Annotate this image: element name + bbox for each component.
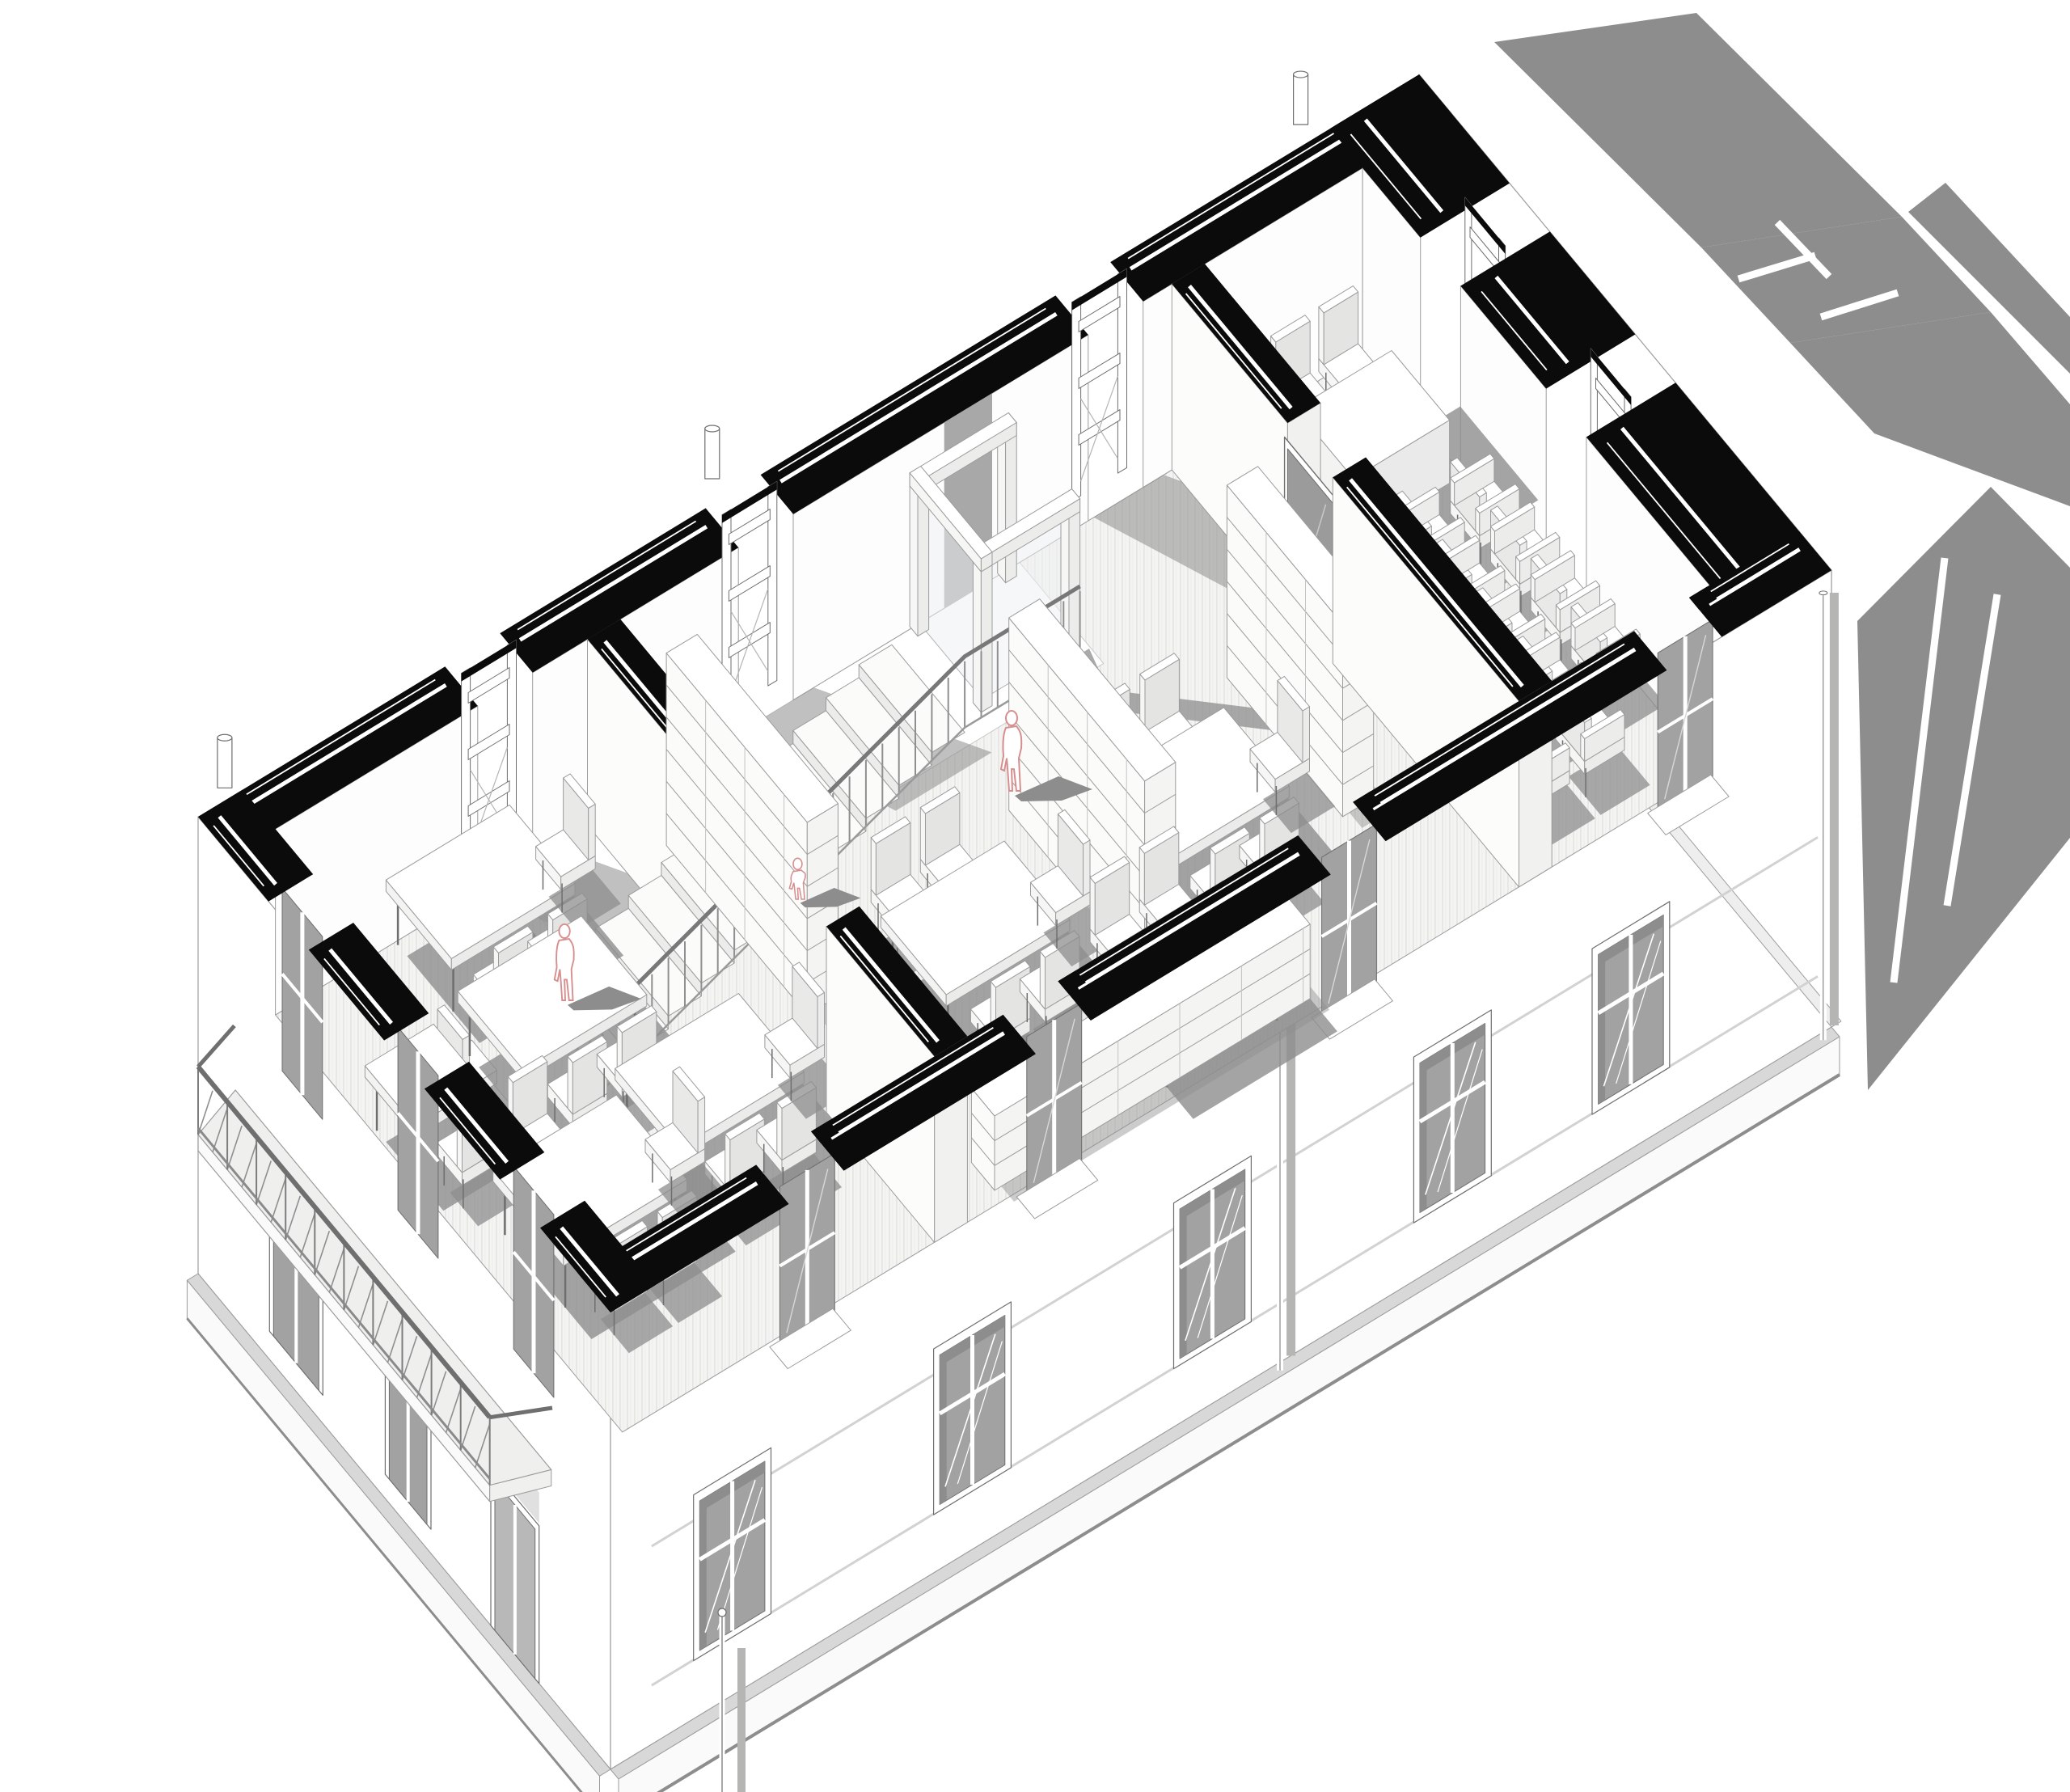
window-reveal (1599, 950, 1606, 1104)
chair-back (568, 1057, 572, 1115)
scene-item (218, 734, 232, 788)
chimney-pipe (218, 738, 232, 788)
figure-head (793, 858, 802, 869)
window-reveal (699, 1497, 707, 1650)
chimney-top (705, 425, 720, 432)
chair-back (589, 804, 596, 860)
building-cast-shadow (1790, 312, 2070, 506)
elevator-post (981, 552, 992, 712)
window-reveal (1420, 1059, 1427, 1212)
chimney-top (218, 734, 232, 741)
figure-head (559, 924, 569, 938)
elevator-post (973, 549, 981, 712)
chair-back (817, 992, 825, 1048)
drawing-canvas (0, 0, 2070, 1792)
chair-back (1139, 847, 1144, 906)
window-reveal (940, 1350, 947, 1504)
chair-back (1084, 840, 1091, 896)
flagpole-finial (718, 1608, 726, 1617)
chair-back (1090, 877, 1095, 936)
chimney-top (1294, 71, 1308, 78)
chimney-pipe (705, 429, 720, 479)
chair-back (777, 1102, 782, 1160)
elevator-post (1006, 423, 1017, 583)
chair-back (920, 808, 925, 866)
figure-head (1006, 711, 1017, 725)
elevator-post (1069, 499, 1080, 659)
chair-back (1319, 306, 1324, 365)
window-reveal (1180, 1205, 1187, 1359)
elevator-post (910, 473, 918, 636)
chair-back (871, 838, 876, 896)
downpipe-top (1819, 591, 1827, 595)
scene-item (1294, 71, 1308, 125)
scene-item (705, 425, 720, 479)
chair-back (1040, 952, 1045, 1010)
chair-back (698, 1097, 705, 1153)
chimney-pipe (1294, 74, 1308, 125)
axonometric-cutaway-drawing (0, 0, 2070, 1792)
building-cast-shadow (1494, 13, 1902, 247)
chair-back (1303, 707, 1310, 763)
